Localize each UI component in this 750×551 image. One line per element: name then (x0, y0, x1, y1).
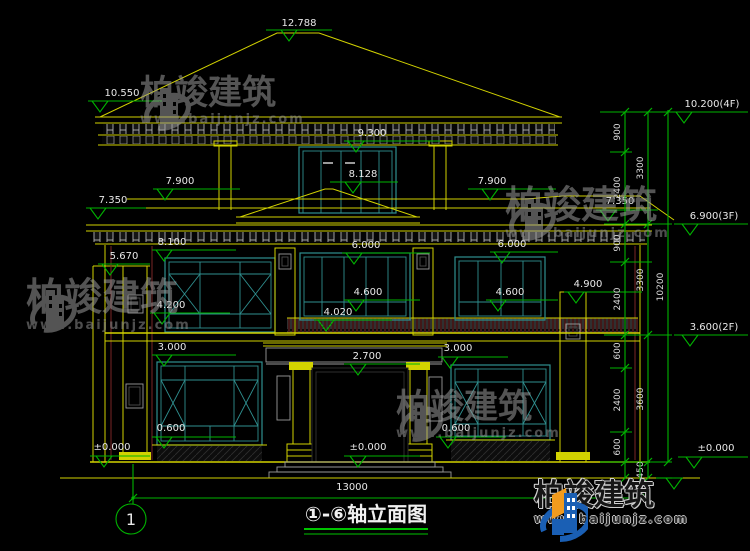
chain-dim: 600 (613, 438, 623, 455)
marker-label: 2.700 (353, 351, 382, 362)
chain-dim: 600 (613, 342, 623, 359)
footer-logo-icon (534, 481, 588, 545)
elevation-drawing-canvas: 12.788 10.550 9.300 8.128 7.900 7.900 7.… (0, 0, 750, 551)
marker-label: ±0.000 (697, 443, 734, 454)
marker-7900-left: 7.900 (153, 176, 240, 200)
marker-label: 3.000 (444, 343, 473, 354)
left-pilaster (119, 266, 151, 460)
right-dimension-chain: 900 2400 900 2400 600 2400 600 450 3300 … (600, 99, 748, 489)
chain-dim: 450 (636, 461, 646, 478)
chain-dim: 3600 (636, 387, 646, 410)
marker-roof-apex: 12.788 (266, 18, 332, 41)
marker-level-2f: 3.600(2F) (674, 322, 748, 346)
marker-7900-right: 7.900 (468, 176, 556, 200)
marker-4200: 4.200 (150, 300, 230, 324)
marker-level-4f: 10.200(4F) (668, 99, 748, 123)
marker-label: 10.200(4F) (685, 99, 740, 110)
second-floor-roof (86, 189, 674, 244)
chain-dim: 2400 (613, 176, 623, 199)
marker-label: 7.350 (99, 195, 128, 206)
marker-label: 4.600 (496, 287, 525, 298)
penthouse-third-floor (214, 141, 452, 213)
marker-0600-left: 0.600 (152, 423, 236, 448)
cad-elevation-sheet: 12.788 10.550 9.300 8.128 7.900 7.900 7.… (0, 0, 750, 551)
marker-label: 4.900 (574, 279, 603, 290)
marker-left-eave: 10.550 (88, 88, 162, 112)
chain-dim: 3300 (636, 268, 646, 291)
marker-6000-right: 6.000 (490, 239, 558, 263)
chain-total-dim: 10200 (656, 272, 666, 301)
marker-label: 8.100 (158, 237, 187, 248)
marker-label: 4.600 (354, 287, 383, 298)
marker-label: 7.900 (478, 176, 507, 187)
marker-label: 12.788 (282, 18, 317, 29)
footer-logo: 柏竣建筑 www.baijunjz.com (534, 481, 689, 526)
marker-label: 3.600(2F) (690, 322, 739, 333)
marker-label: 6.900(3F) (690, 211, 739, 222)
marker-8128: 8.128 (330, 169, 398, 193)
chain-dim: 900 (613, 123, 623, 140)
marker-label: ±0.000 (93, 442, 130, 453)
chain-dim: 3300 (636, 156, 646, 179)
marker-label: 9.300 (358, 128, 387, 139)
total-width-dim: 13000 (336, 482, 368, 493)
chain-dim: 900 (613, 234, 623, 251)
marker-label: 0.600 (442, 423, 471, 434)
penthouse-door (299, 147, 396, 213)
window-1f-left (152, 362, 267, 461)
marker-label: ±0.000 (349, 442, 386, 453)
marker-label: 7.900 (166, 176, 195, 187)
marker-4600-left: 4.600 (344, 287, 420, 311)
main-roof (95, 33, 562, 145)
marker-4600-right: 4.600 (486, 287, 558, 311)
marker-label: 4.200 (157, 300, 186, 311)
chain-dim: 2400 (613, 287, 623, 310)
marker-label: 0.600 (157, 423, 186, 434)
drawing-title-block: ①-⑥轴立面图 (304, 502, 428, 534)
marker-label: 6.000 (352, 240, 381, 251)
window-2f-left (165, 258, 275, 332)
axis-bubble-1: 1 (116, 504, 146, 534)
marker-level-3f: 6.900(3F) (674, 211, 748, 235)
marker-label: 8.128 (349, 169, 378, 180)
wall-ornament-left (277, 376, 290, 420)
marker-label: 5.670 (110, 251, 139, 262)
marker-label: 3.000 (158, 342, 187, 353)
marker-label: 10.550 (105, 88, 140, 99)
porch-column-left (287, 362, 315, 462)
axis-number: 1 (126, 510, 136, 529)
wall-ornament-right (429, 377, 442, 421)
marker-3000-right: 3.000 (438, 343, 508, 368)
marker-level-ground: ±0.000 (678, 443, 748, 468)
window-1f-right (446, 365, 555, 461)
marker-label: 4.020 (324, 307, 353, 318)
marker-4900: 4.900 (564, 279, 642, 303)
first-floor (60, 343, 700, 478)
marker-5670: 5.670 (98, 251, 150, 275)
chain-dim: 2400 (613, 388, 623, 411)
drawing-title: ①-⑥轴立面图 (305, 502, 427, 526)
marker-label: 6.000 (498, 239, 527, 250)
